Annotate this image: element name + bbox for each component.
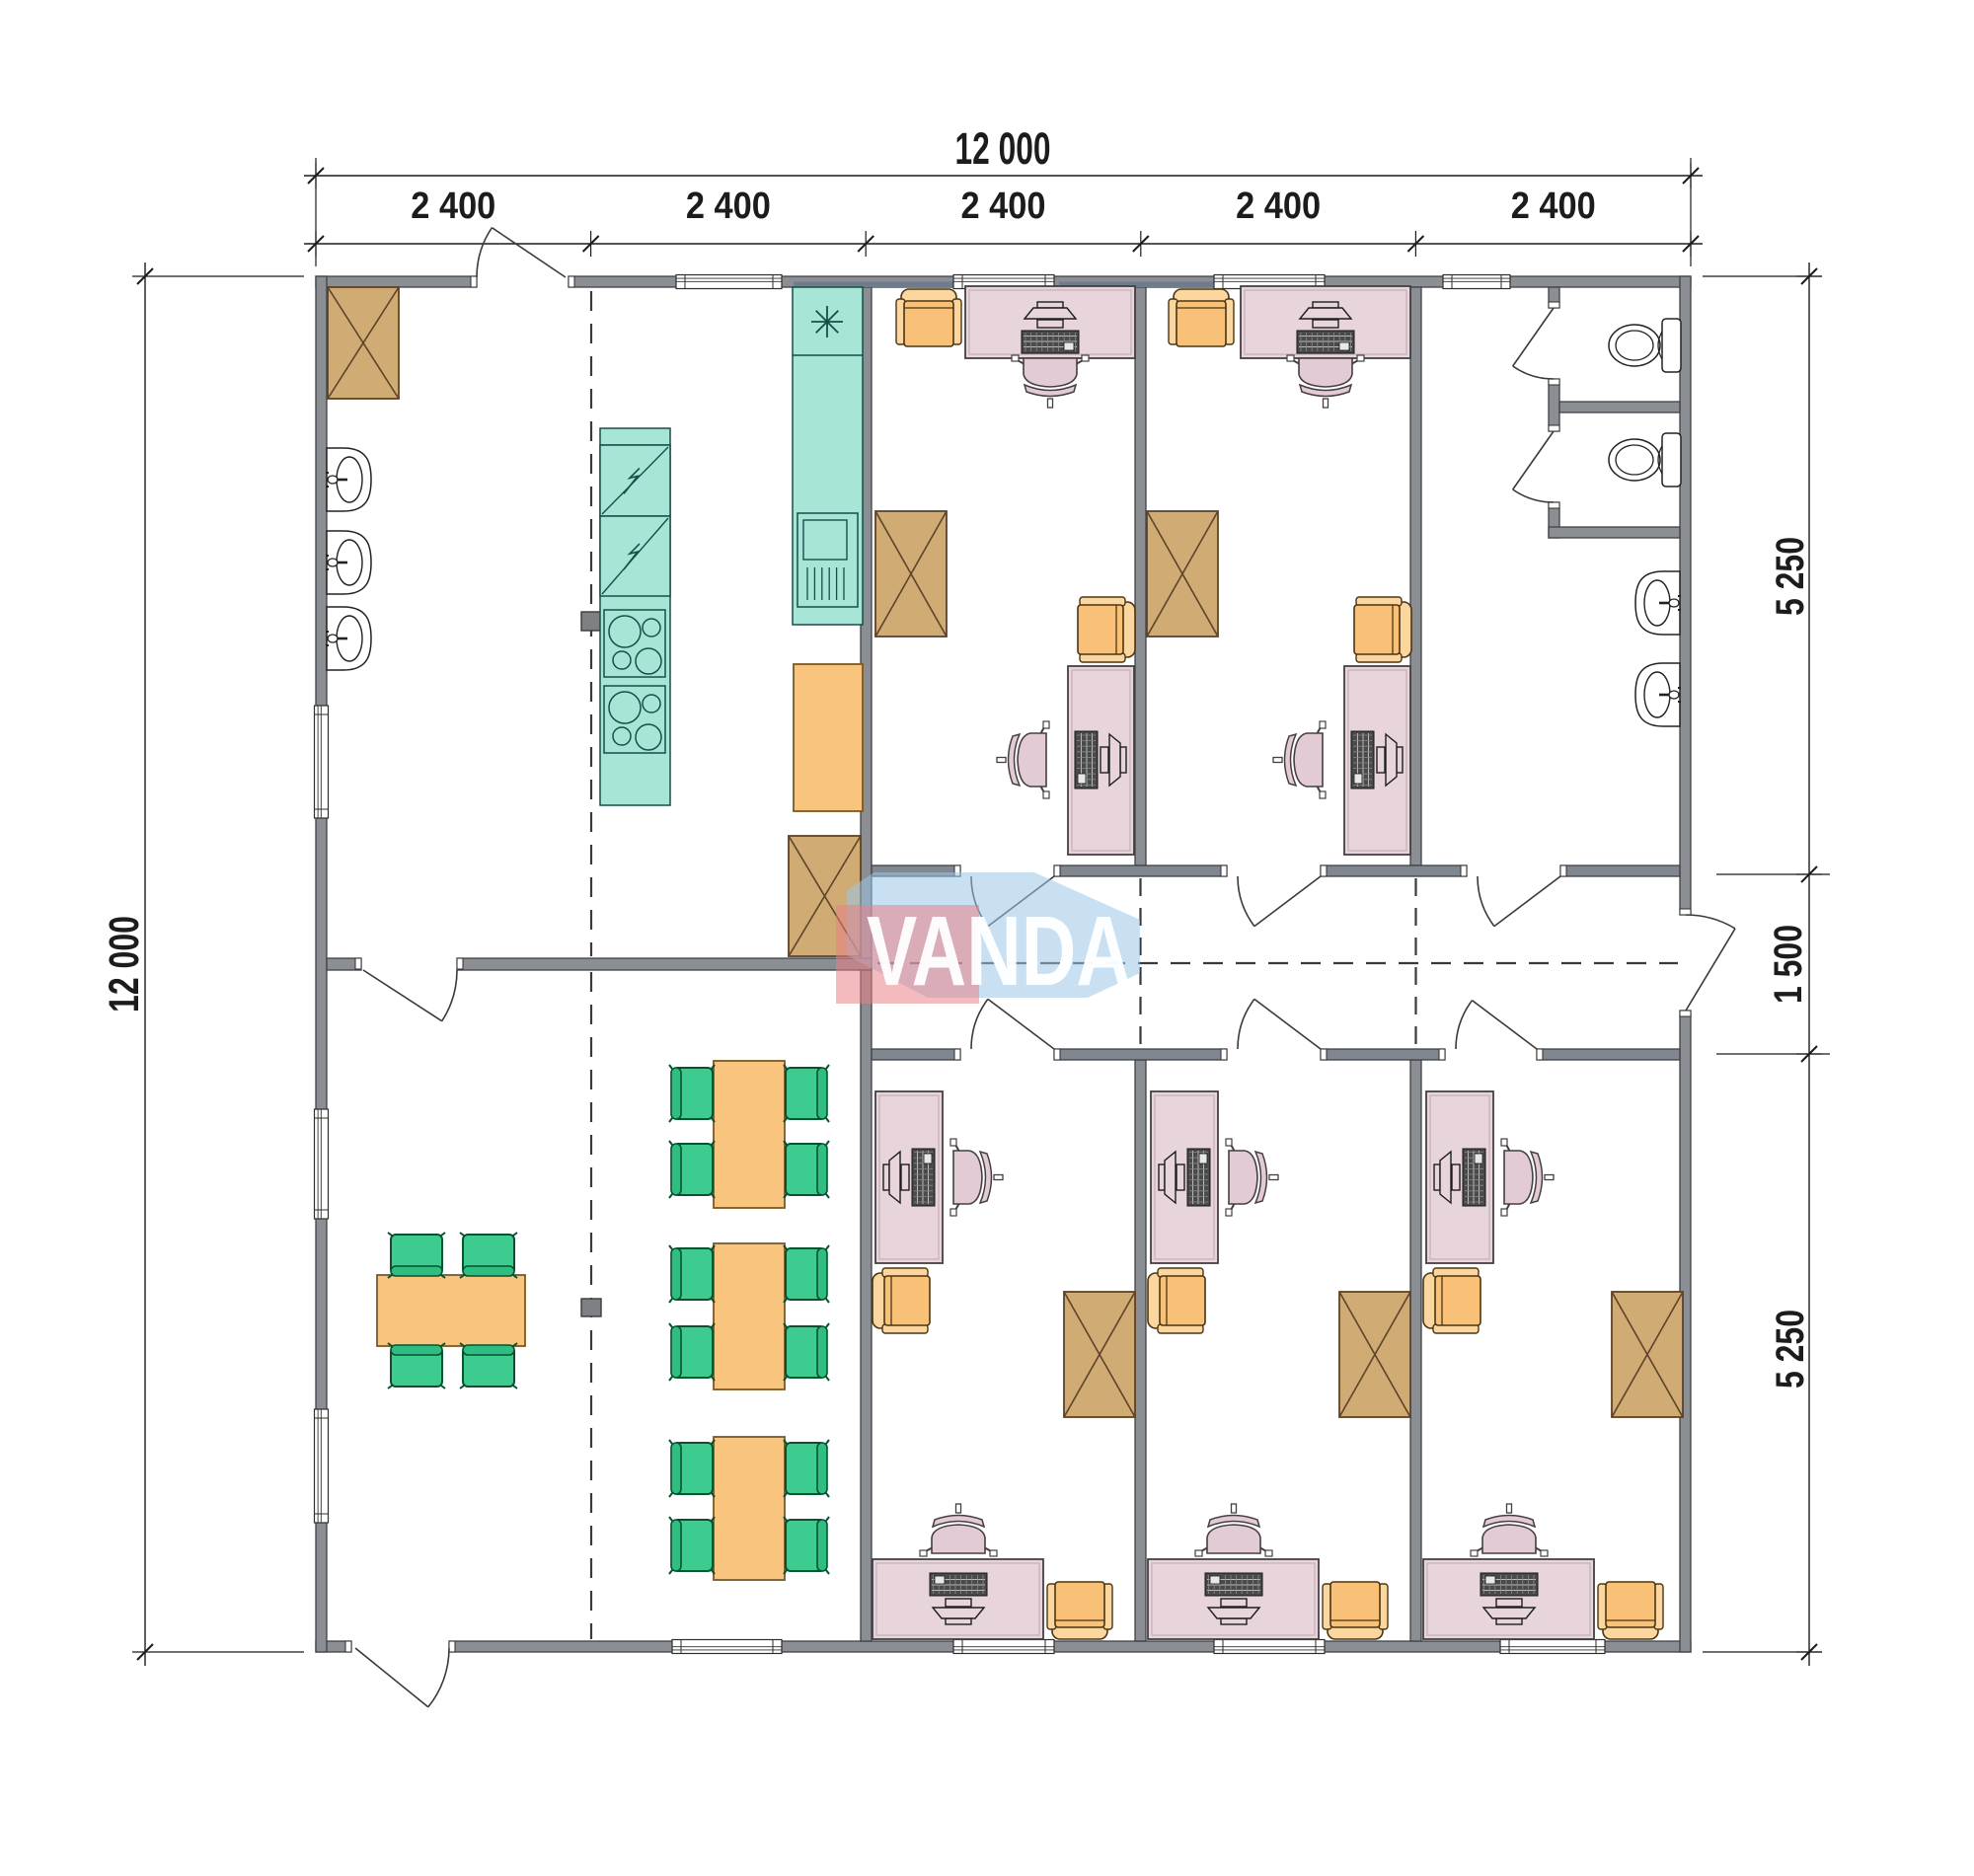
svg-text:2 400: 2 400 — [961, 186, 1046, 227]
svg-text:2 400: 2 400 — [1511, 186, 1596, 227]
svg-text:5 250: 5 250 — [1769, 1310, 1812, 1388]
svg-text:12 000: 12 000 — [955, 123, 1051, 174]
svg-text:1 500: 1 500 — [1767, 925, 1810, 1004]
svg-text:2 400: 2 400 — [1236, 186, 1321, 227]
svg-text:12 000: 12 000 — [101, 916, 148, 1013]
svg-text:5 250: 5 250 — [1769, 537, 1812, 616]
svg-text:VANDA: VANDA — [867, 896, 1131, 1007]
svg-text:2 400: 2 400 — [686, 186, 771, 227]
svg-text:2 400: 2 400 — [411, 186, 495, 227]
